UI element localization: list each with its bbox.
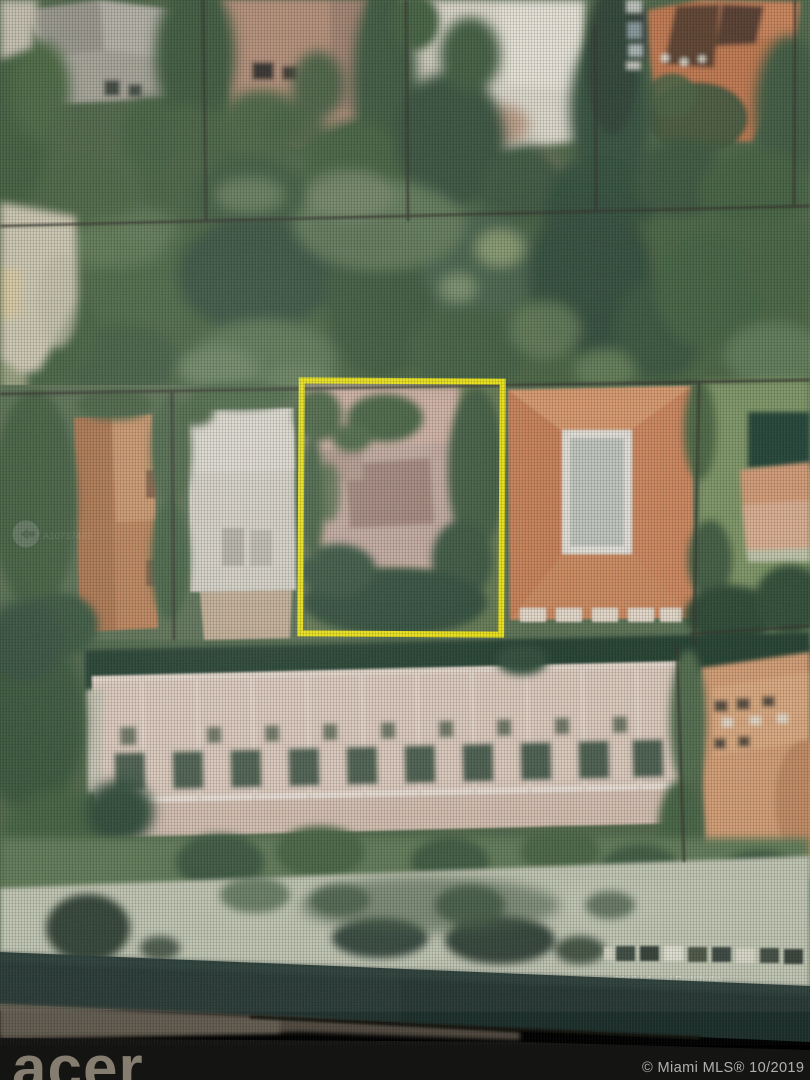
- svg-text:© Miami MLS® 10/2019: © Miami MLS® 10/2019: [642, 1060, 804, 1076]
- svg-text:acer: acer: [12, 1034, 144, 1080]
